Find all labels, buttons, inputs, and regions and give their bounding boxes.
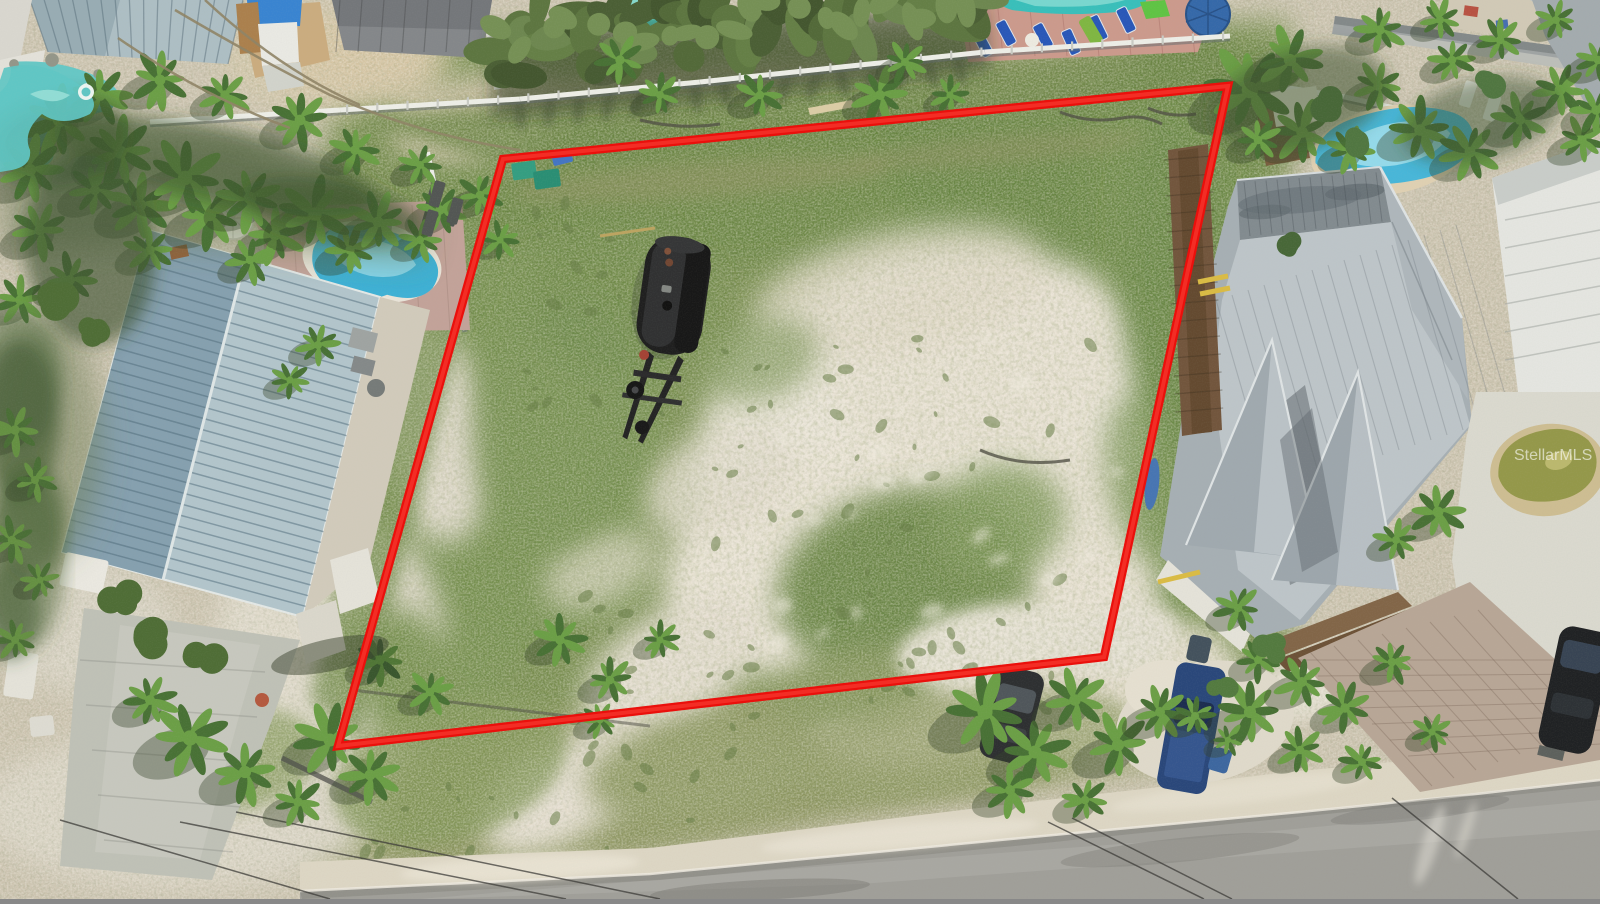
svg-text:StellarMLS: StellarMLS <box>1514 447 1592 464</box>
